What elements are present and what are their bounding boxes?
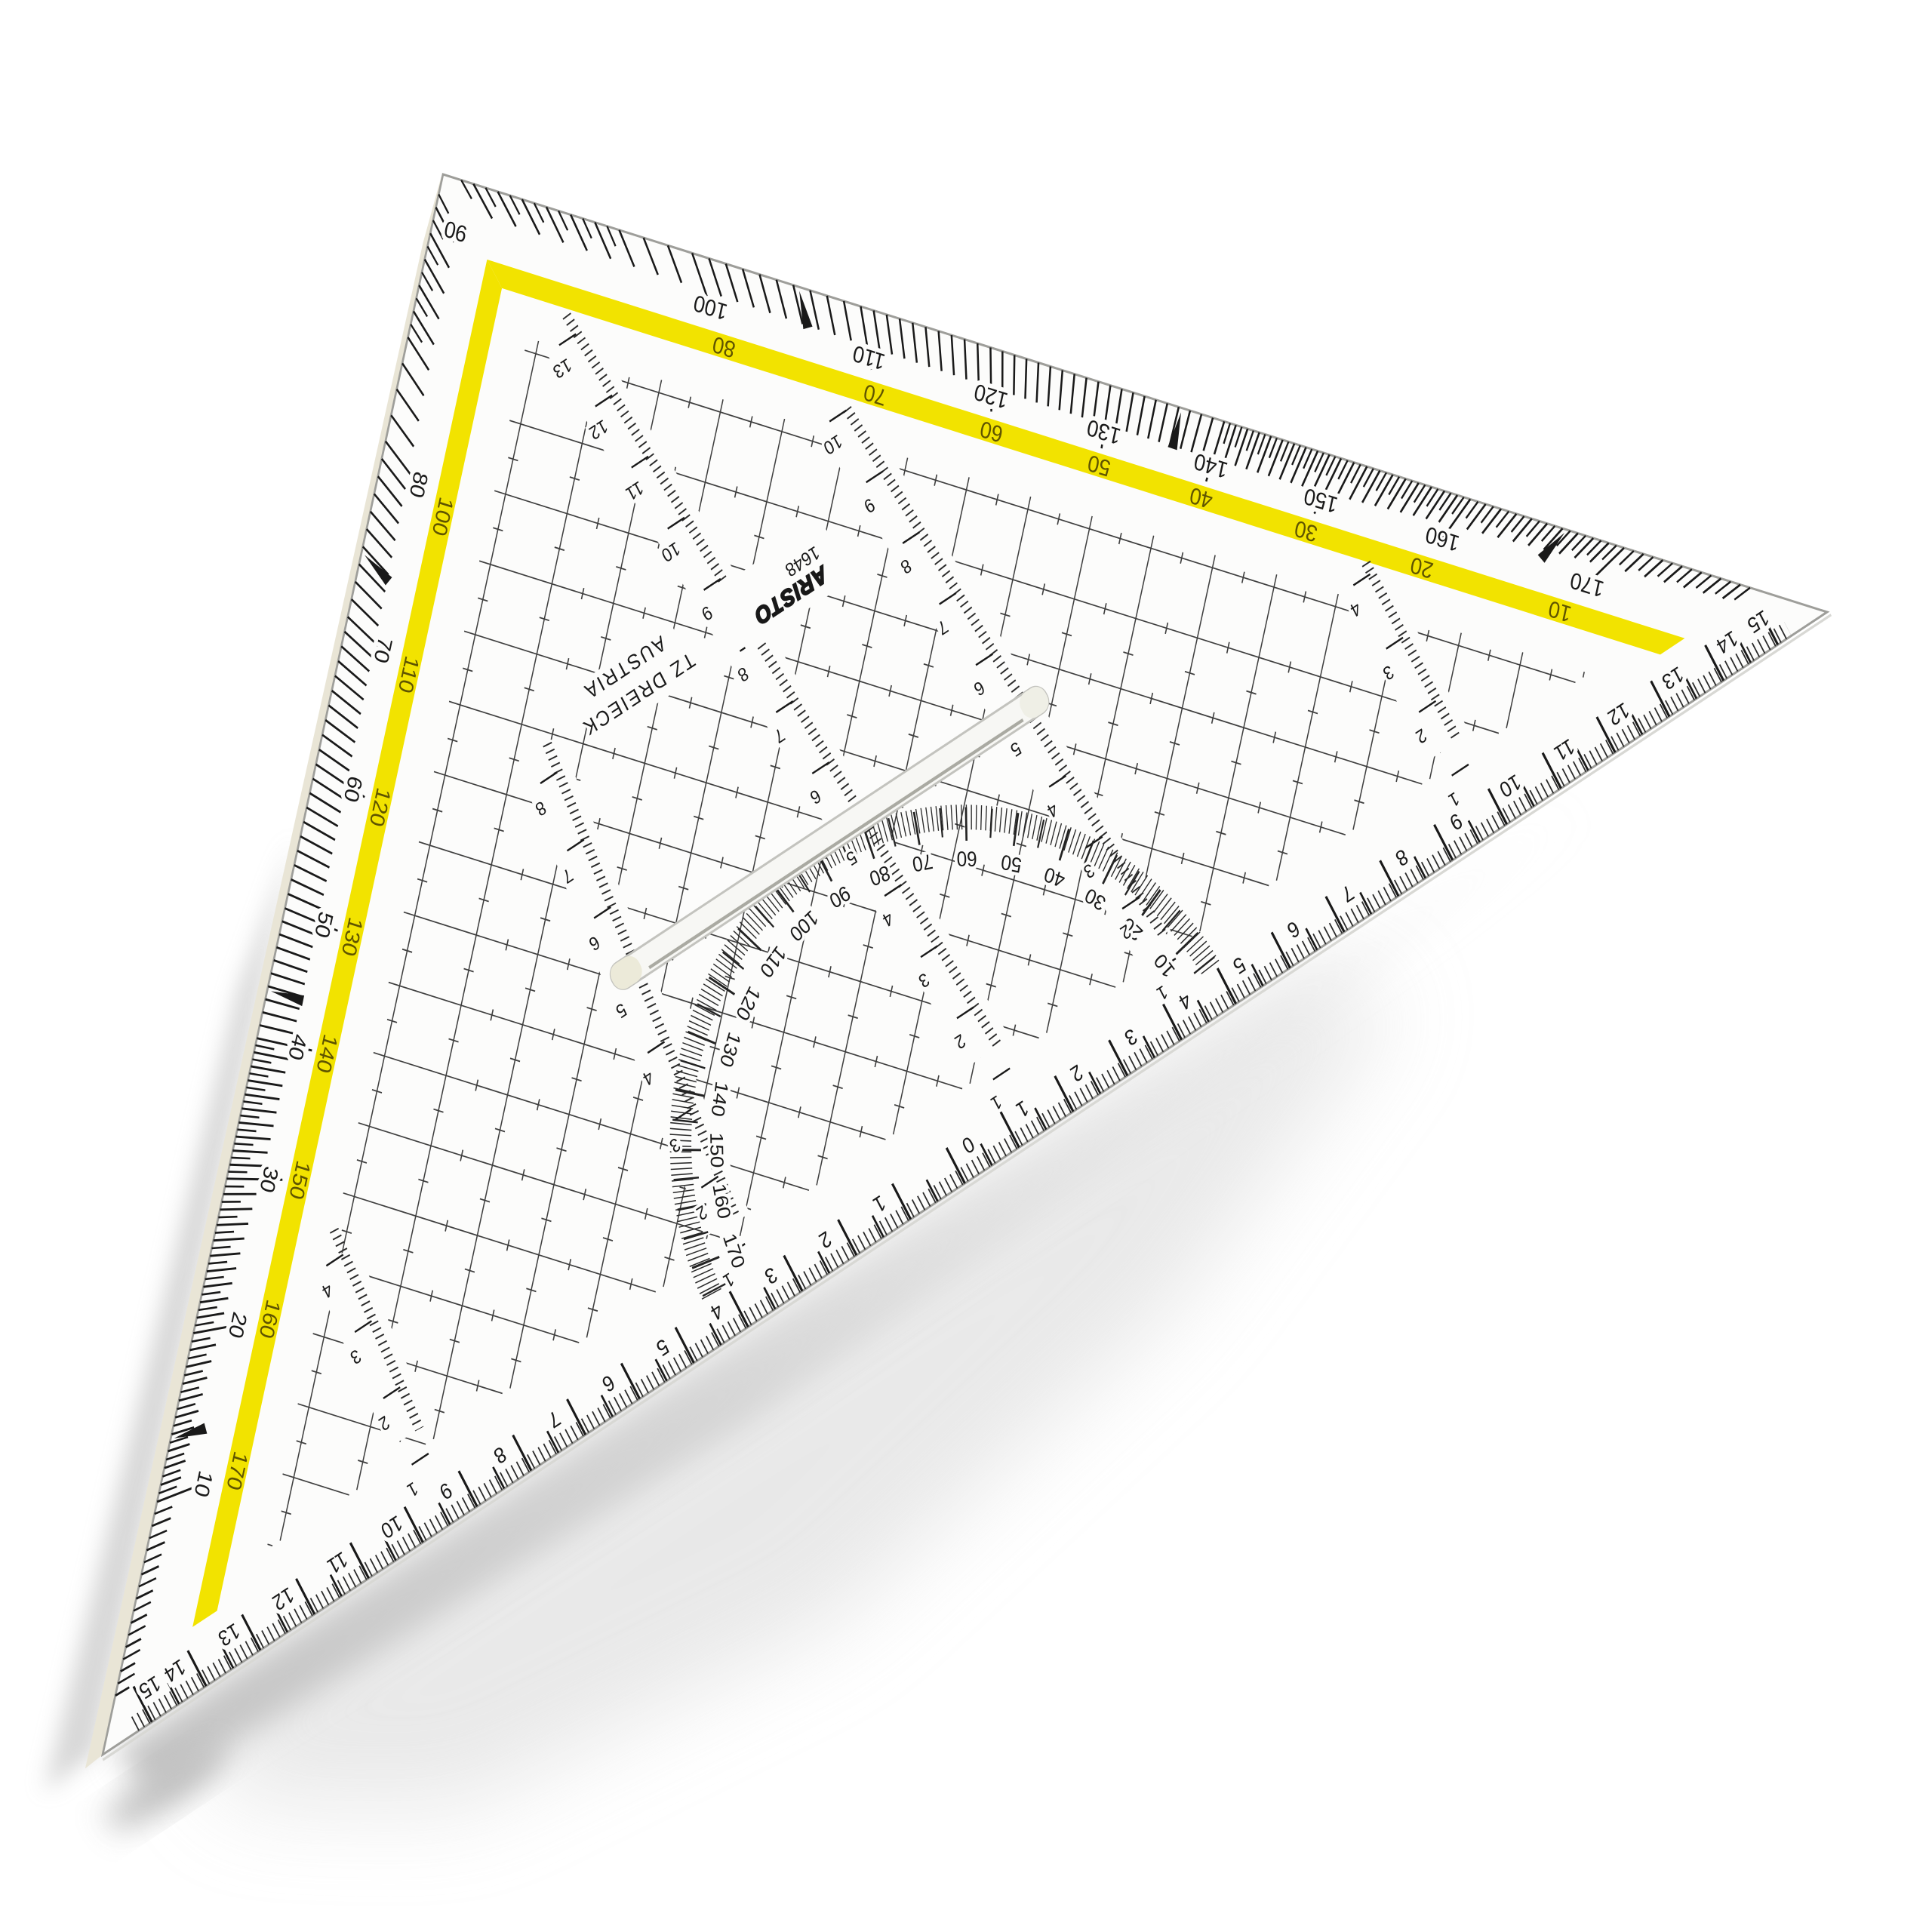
svg-text:20: 20 (1408, 552, 1435, 583)
svg-text:10: 10 (1546, 595, 1574, 626)
svg-text:90: 90 (442, 215, 469, 247)
svg-text:70: 70 (369, 634, 396, 666)
svg-text:150: 150 (706, 1133, 728, 1168)
svg-text:30: 30 (255, 1164, 282, 1195)
svg-text:140: 140 (707, 1080, 733, 1119)
svg-text:20: 20 (223, 1309, 251, 1341)
svg-text:50: 50 (1085, 449, 1112, 481)
svg-text:10: 10 (189, 1468, 217, 1500)
svg-text:30: 30 (1293, 515, 1320, 546)
svg-text:50: 50 (999, 850, 1023, 878)
svg-text:60: 60 (978, 415, 1005, 447)
svg-text:80: 80 (710, 331, 737, 362)
svg-text:60: 60 (956, 847, 977, 871)
svg-text:40: 40 (284, 1031, 311, 1063)
svg-text:50: 50 (310, 909, 337, 940)
svg-text:40: 40 (1188, 481, 1215, 513)
svg-text:60: 60 (339, 773, 366, 804)
svg-text:80: 80 (405, 469, 432, 500)
svg-text:160: 160 (709, 1182, 735, 1220)
svg-text:70: 70 (862, 378, 889, 410)
svg-text:70: 70 (911, 849, 935, 877)
